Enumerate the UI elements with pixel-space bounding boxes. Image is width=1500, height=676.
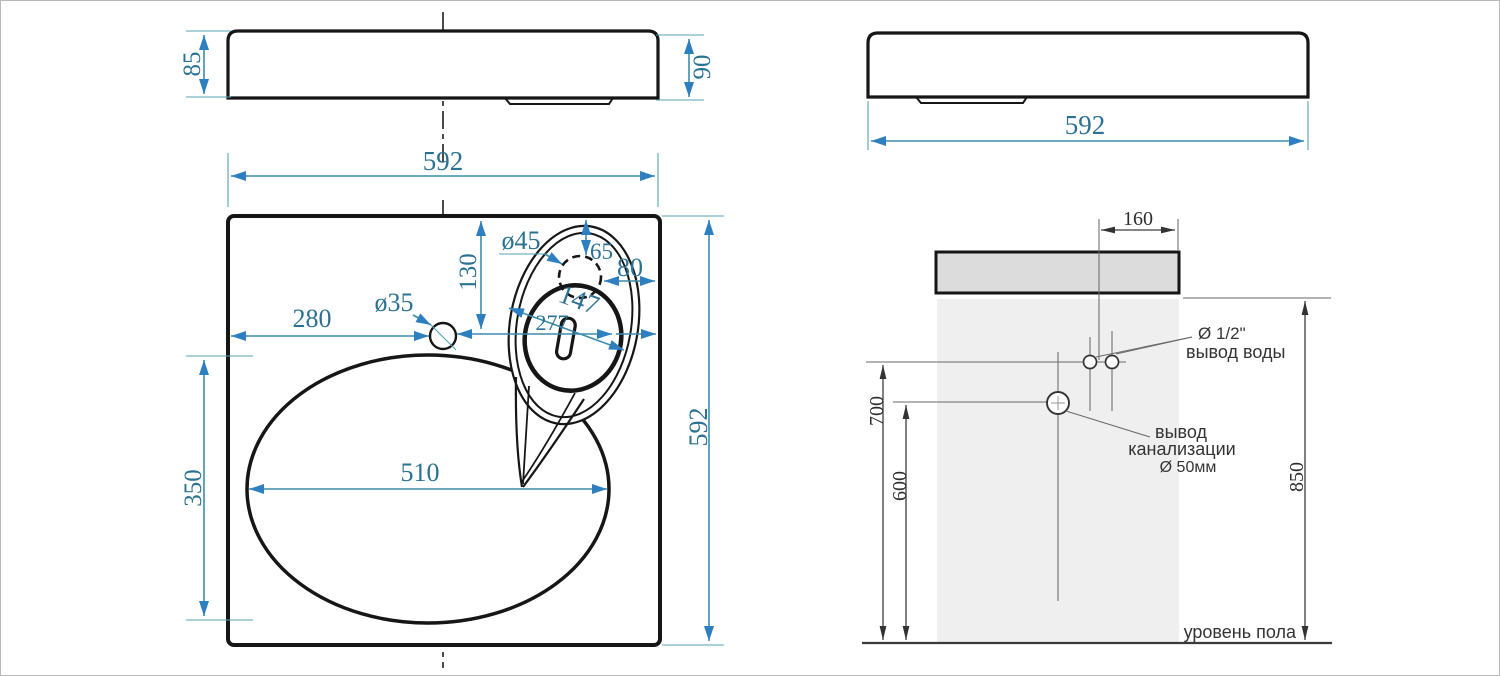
sink-body xyxy=(936,252,1179,293)
dim-350-label: 350 xyxy=(180,469,207,507)
dim-592s-label: 592 xyxy=(1065,110,1106,140)
dim-160-label: 160 xyxy=(1123,208,1153,230)
dim-o45-label: ø45 xyxy=(502,226,541,255)
water-outlet-right xyxy=(1106,356,1119,369)
dim-80-label: 80 xyxy=(617,253,643,282)
dim-280-label: 280 xyxy=(293,304,332,333)
dim-90-label: 90 xyxy=(689,55,716,80)
dim-o35-label: ø35 xyxy=(375,288,414,317)
water-outlet-left xyxy=(1084,356,1097,369)
dim-510-label: 510 xyxy=(401,458,440,487)
dim-700-label: 700 xyxy=(866,396,888,426)
plan-view: 280 ø35 130 ø45 65 80 147 277 510 350 xyxy=(180,200,724,668)
dim-65-label: 65 xyxy=(590,239,613,264)
dim-592f-label: 592 xyxy=(423,146,464,176)
sink-drawing-svg: 85 90 592 280 xyxy=(0,0,1500,676)
dim-592r-label: 592 xyxy=(684,408,713,447)
technical-drawing-page: 85 90 592 280 xyxy=(0,0,1500,676)
drain-label-line2: канализации xyxy=(1128,439,1235,459)
dim-85-label: 85 xyxy=(179,52,206,77)
dim-850-label: 850 xyxy=(1286,462,1308,492)
drain-size-label: Ø 50мм xyxy=(1160,459,1217,476)
dim-277-label: 277 xyxy=(536,310,569,335)
side-view-outline xyxy=(868,33,1308,97)
dim-130-label: 130 xyxy=(455,253,482,291)
dim-600-label: 600 xyxy=(889,471,911,501)
front-view-outline xyxy=(228,31,658,98)
water-outlet-label: вывод воды xyxy=(1186,342,1285,362)
floor-label: уровень пола xyxy=(1184,622,1297,642)
water-outlet-size-label: Ø 1/2" xyxy=(1198,324,1246,343)
page-border xyxy=(1,1,1500,676)
faucet-hole xyxy=(430,323,456,349)
